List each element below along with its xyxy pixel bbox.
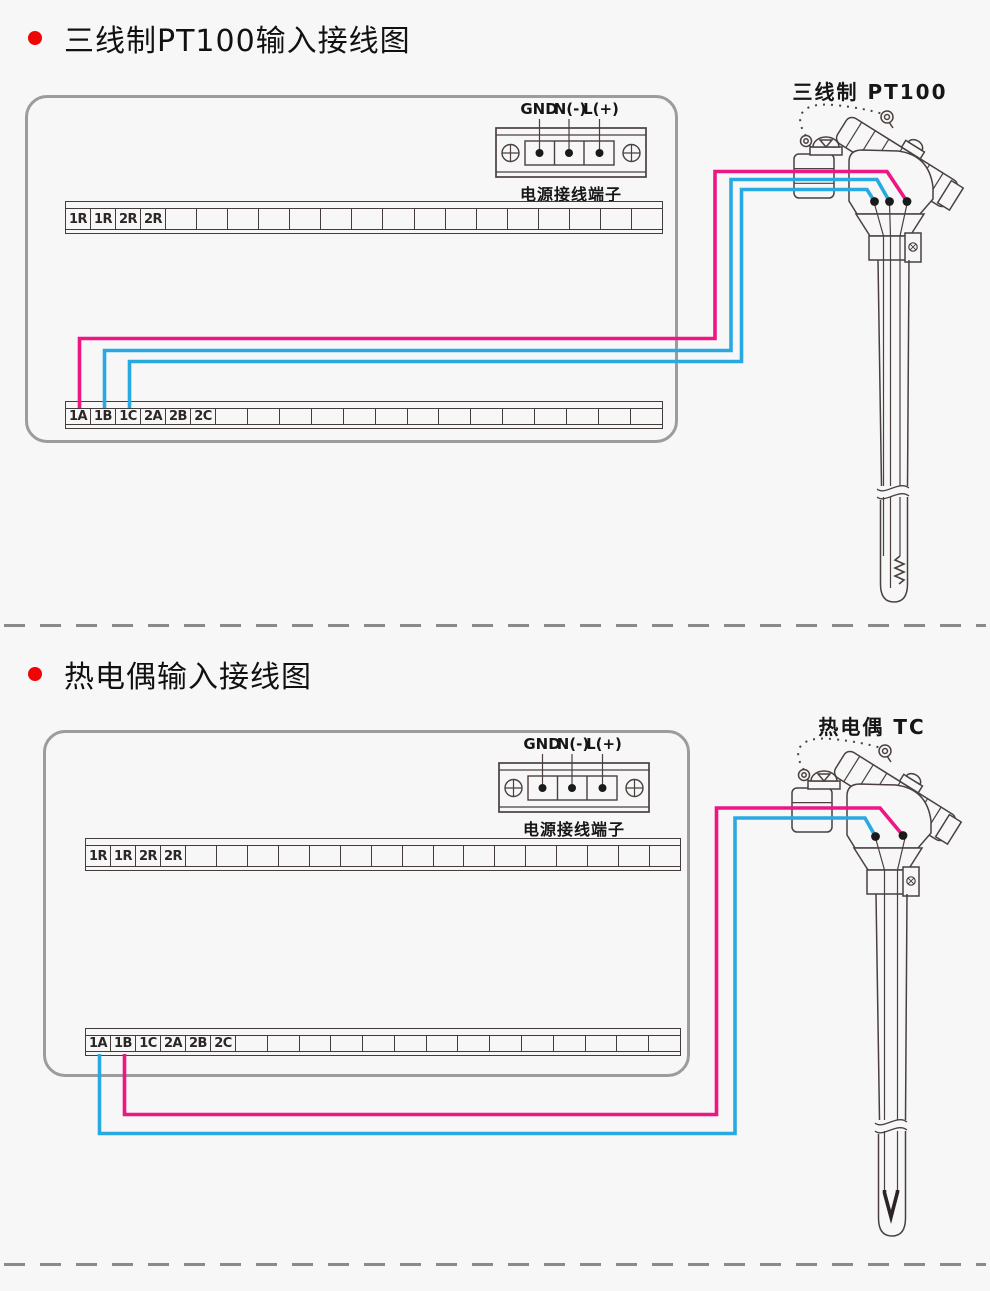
terminal-cell-empty <box>522 1036 554 1051</box>
terminal-cell-1A: 1A <box>86 1036 111 1051</box>
strip-rail <box>86 1029 680 1036</box>
terminal-cell-empty <box>471 409 503 424</box>
terminal-cell-empty <box>586 1036 618 1051</box>
terminal-cell-empty <box>490 1036 522 1051</box>
wiring-diagram-document: { "colors": { "line": "#4a4040", "panel_… <box>0 0 990 1291</box>
power-label-n: N(-) <box>554 100 587 118</box>
terminal-cell-empty <box>458 1036 490 1051</box>
terminal-cell-empty <box>259 209 290 229</box>
terminal-cell-empty <box>331 1036 363 1051</box>
terminal-cell-2C: 2C <box>211 1036 236 1051</box>
terminal-cell-empty <box>446 209 477 229</box>
terminal-cell-empty <box>248 409 280 424</box>
terminal-cell-empty <box>588 846 619 866</box>
terminal-cell-2R: 2R <box>161 846 186 866</box>
terminal-cell-empty <box>464 846 495 866</box>
section-divider <box>4 624 986 627</box>
terminal-cell-empty <box>300 1036 332 1051</box>
terminal-cell-empty <box>408 409 440 424</box>
terminal-cell-empty <box>617 1036 649 1051</box>
terminal-cell-2C: 2C <box>191 409 216 424</box>
sensor-label: 三线制 PT100 <box>792 76 947 105</box>
terminal-cell-empty <box>248 846 279 866</box>
terminal-cell-2A: 2A <box>161 1036 186 1051</box>
terminal-cell-1C: 1C <box>116 409 141 424</box>
section-title: 热电偶输入接线图 <box>64 652 312 696</box>
terminal-cell-1R: 1R <box>111 846 136 866</box>
strip-rail <box>66 229 662 233</box>
terminal-cell-empty <box>186 846 217 866</box>
terminal-cell-2R: 2R <box>116 209 141 229</box>
terminal-cell-2R: 2R <box>136 846 161 866</box>
strip-rail <box>86 839 680 846</box>
terminal-cell-empty <box>495 846 526 866</box>
strip-rail <box>66 402 662 409</box>
instrument-panel <box>43 730 690 1077</box>
terminal-cell-empty <box>415 209 446 229</box>
power-label-l: L(+) <box>586 735 622 753</box>
terminal-cell-1R: 1R <box>66 209 91 229</box>
terminal-cell-empty <box>557 846 588 866</box>
terminal-cell-empty <box>508 209 539 229</box>
terminal-cell-empty <box>279 846 310 866</box>
terminal-cell-empty <box>395 1036 427 1051</box>
page-divider <box>4 1263 986 1266</box>
terminal-cell-empty <box>344 409 376 424</box>
terminal-cell-empty <box>503 409 535 424</box>
terminal-cell-empty <box>310 846 341 866</box>
terminal-cell-empty <box>427 1036 459 1051</box>
terminal-cell-1A: 1A <box>66 409 91 424</box>
terminal-cell-2B: 2B <box>166 409 191 424</box>
sensor-label: 热电偶 TC <box>818 711 925 740</box>
terminal-cell-empty <box>372 846 403 866</box>
terminal-strip-input: 1A1B1C2A2B2C <box>85 1028 681 1056</box>
terminal-strip-relay: 1R1R2R2R <box>85 838 681 871</box>
terminal-cell-empty <box>650 846 680 866</box>
terminal-cell-2R: 2R <box>141 209 166 229</box>
terminal-cell-empty <box>649 1036 680 1051</box>
section-title: 三线制PT100输入接线图 <box>64 16 411 60</box>
terminal-cell-empty <box>439 409 471 424</box>
terminal-cell-empty <box>363 1036 395 1051</box>
power-label-gnd: GND <box>520 100 557 118</box>
terminal-cell-1R: 1R <box>86 846 111 866</box>
terminal-cell-1B: 1B <box>111 1036 136 1051</box>
strip-rail <box>86 1051 680 1055</box>
terminal-cell-1R: 1R <box>91 209 116 229</box>
terminal-cell-empty <box>166 209 197 229</box>
terminal-cell-2A: 2A <box>141 409 166 424</box>
power-terminal-caption: 电源接线端子 <box>523 816 625 840</box>
strip-rail <box>86 866 680 870</box>
strip-rail <box>66 424 662 428</box>
terminal-cell-empty <box>567 409 599 424</box>
terminal-cell-empty <box>631 409 662 424</box>
strip-rail <box>66 202 662 209</box>
terminal-cell-empty <box>268 1036 300 1051</box>
terminal-cell-empty <box>236 1036 268 1051</box>
terminal-cell-empty <box>632 209 662 229</box>
instrument-panel <box>25 95 678 443</box>
terminal-cell-empty <box>434 846 465 866</box>
terminal-cell-empty <box>403 846 434 866</box>
terminal-cell-empty <box>321 209 352 229</box>
section-heading-tc: 热电偶输入接线图 <box>28 652 312 696</box>
terminal-cell-1B: 1B <box>91 409 116 424</box>
terminal-cell-empty <box>526 846 557 866</box>
terminal-cell-empty <box>228 209 259 229</box>
terminal-cell-empty <box>570 209 601 229</box>
terminal-cell-empty <box>619 846 650 866</box>
terminal-cell-empty <box>599 409 631 424</box>
terminal-cell-empty <box>539 209 570 229</box>
bullet-icon <box>28 31 42 45</box>
terminal-cell-empty <box>554 1036 586 1051</box>
terminal-cell-empty <box>217 846 248 866</box>
terminal-cell-empty <box>280 409 312 424</box>
terminal-cell-empty <box>477 209 508 229</box>
terminal-cell-empty <box>312 409 344 424</box>
terminal-cell-empty <box>341 846 372 866</box>
terminal-cell-empty <box>216 409 248 424</box>
terminal-cell-2B: 2B <box>186 1036 211 1051</box>
section-heading-pt100: 三线制PT100输入接线图 <box>28 16 411 60</box>
power-label-l: L(+) <box>583 100 619 118</box>
terminal-cell-empty <box>290 209 321 229</box>
power-label-gnd: GND <box>523 735 560 753</box>
power-label-n: N(-) <box>557 735 590 753</box>
bullet-icon <box>28 667 42 681</box>
terminal-strip-input: 1A1B1C2A2B2C <box>65 401 663 429</box>
terminal-cell-empty <box>352 209 383 229</box>
terminal-strip-relay: 1R1R2R2R <box>65 201 663 234</box>
terminal-cell-empty <box>535 409 567 424</box>
terminal-cell-empty <box>197 209 228 229</box>
terminal-cell-empty <box>376 409 408 424</box>
terminal-cell-1C: 1C <box>136 1036 161 1051</box>
terminal-cell-empty <box>383 209 414 229</box>
terminal-cell-empty <box>601 209 632 229</box>
